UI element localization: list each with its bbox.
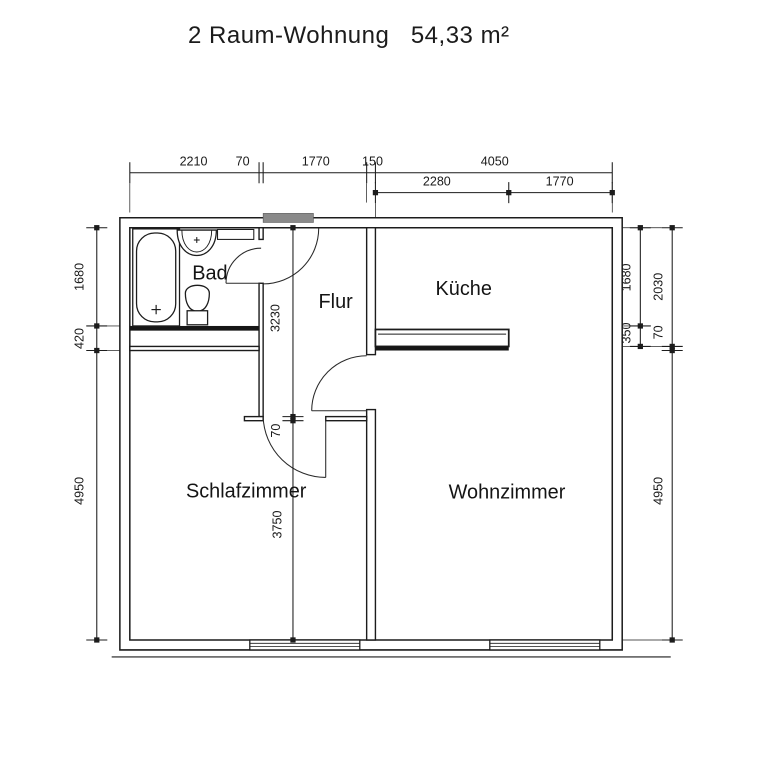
room-label-kche: Küche	[436, 278, 492, 300]
bad-flur-wall-upper	[259, 228, 263, 240]
kitchen-counter-base-wall	[375, 346, 508, 350]
dim-label-1680-10: 1680	[619, 263, 633, 291]
washbasin	[177, 230, 216, 255]
room-label-schlafzimmer: Schlafzimmer	[186, 480, 307, 502]
floor-plan-svg: BadFlurKücheSchlafzimmerWohnzimmer 22107…	[45, 140, 700, 678]
dim-label-2210-0: 2210	[180, 155, 208, 169]
bad-door-arc	[226, 248, 261, 283]
dim-ticks-top-1	[130, 162, 612, 217]
flur-bottom-wall	[326, 417, 367, 421]
floor-plan-page: 2 Raum-Wohnung 54,33 m²	[0, 0, 784, 768]
schlafzimmer-top-wall	[130, 346, 259, 350]
dim-label-1770-6: 1770	[546, 175, 574, 189]
dim-label-350-11: 350	[619, 322, 633, 343]
dim-label-70-1: 70	[236, 155, 250, 169]
dim-label-4050-4: 4050	[481, 155, 509, 169]
kitchen-counter	[375, 329, 508, 350]
kitchen-counter-body	[375, 329, 508, 346]
dim-label-420-8: 420	[73, 328, 87, 349]
dim-label-3230-15: 3230	[269, 304, 283, 332]
dim-label-4950-9: 4950	[73, 477, 87, 505]
flur-kueche-wall	[367, 228, 376, 355]
flur-bottom-jamb	[244, 417, 263, 421]
wall-cabinet	[218, 229, 254, 239]
room-label-bad: Bad	[192, 263, 227, 285]
dim-label-1680-7: 1680	[73, 263, 87, 291]
room-label-flur: Flur	[319, 291, 354, 313]
dim-label-2280-5: 2280	[423, 175, 451, 189]
entrance-door-panel	[263, 213, 313, 222]
page-title: 2 Raum-Wohnung 54,33 m²	[188, 22, 510, 50]
wohnzimmer-door-arc	[312, 356, 367, 411]
bad-bottom-wall	[130, 326, 259, 331]
dim-ticks-left	[86, 228, 120, 640]
dim-label-1770-2: 1770	[302, 155, 330, 169]
dim-label-70-16: 70	[269, 424, 283, 438]
schlaf-wohn-divider-wall	[367, 410, 376, 640]
room-label-wohnzimmer: Wohnzimmer	[449, 481, 566, 503]
dim-dots	[94, 190, 675, 643]
dim-label-70-13: 70	[652, 325, 666, 339]
entrance-door-arc	[263, 228, 319, 284]
dim-label-150-3: 150	[362, 155, 383, 169]
dim-label-3750-17: 3750	[270, 511, 284, 539]
schlafzimmer-window	[250, 640, 360, 650]
bathtub	[133, 229, 180, 326]
toilet	[185, 285, 209, 324]
wohnzimmer-window	[490, 640, 600, 650]
dim-label-4950-14: 4950	[652, 477, 666, 505]
dim-label-2030-12: 2030	[652, 273, 666, 301]
doors	[226, 213, 367, 477]
